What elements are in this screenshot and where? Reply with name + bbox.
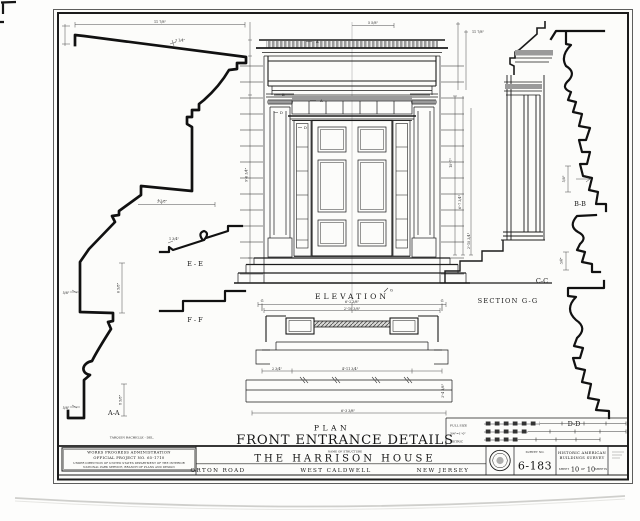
scale-label: 3/4"=1'-0" (450, 432, 466, 436)
section-label-a-a: A-A (107, 409, 120, 417)
wpa-line-1: WORKS PROGRESS ADMINISTRATION (87, 451, 171, 455)
survey-no-label: SURVEY NO. (526, 450, 545, 454)
address-city: WEST CALDWELL (300, 468, 371, 474)
habs-sheet-drawing: 11 7/8" 3 1/4" 3 1/8" 6 5/8" 5/8" 8 5/8"… (0, 0, 640, 521)
section-label-d-d: D-D (568, 420, 581, 428)
cut-ref-b: B (282, 93, 285, 97)
section-label-c-c: C-C (536, 277, 548, 285)
pilaster-capital-right (411, 101, 437, 104)
habs-line-2: BUILDINGS SURVEY (560, 456, 605, 460)
dim-label: 5 5/8" (368, 21, 378, 25)
section-label-f-f: F - F (187, 316, 203, 324)
section-g-g-label: SECTION G-G (478, 297, 539, 305)
habs-of: OF (581, 467, 585, 471)
dim-label: 11 7/8" (472, 30, 485, 34)
scanned-habs-sheet: 11 7/8" 3 1/4" 3 1/8" 6 5/8" 5/8" 8 5/8"… (0, 0, 640, 521)
cut-ref-d: D (280, 111, 283, 115)
scale-bar-full-size (484, 422, 540, 426)
dim-label: 4'-11 3/4" (342, 367, 359, 371)
dim-label: 3 1/4" (175, 39, 185, 43)
dim-label: 9'-6 3/4" (245, 167, 249, 182)
section-label-e-e: E - E (187, 260, 203, 268)
section-label-b-b: B-B (574, 200, 586, 208)
dim-label: 5/8" (63, 291, 70, 295)
dim-label: 10'-7" (449, 158, 453, 168)
dentil-band (266, 41, 438, 48)
survey-number: 6-183 (518, 460, 552, 473)
habs-line-1: HISTORIC AMERICAN (558, 451, 607, 455)
plan-label: PLAN (314, 424, 350, 433)
cut-ref-g: G (441, 299, 444, 303)
cut-ref-d: D (304, 126, 307, 130)
dim-label: 6 5/8" (117, 283, 121, 293)
habs-sheets-suffix: SHEETS (595, 467, 607, 471)
interior-department-seal (490, 450, 510, 470)
wpa-line-4: NATIONAL PARK SERVICE, BRANCH OF PLANS A… (83, 465, 175, 469)
wpa-line-2: OFFICIAL PROJECT NO. 65-1710 (93, 456, 165, 460)
delineator-credit: TARQUIN RACHELLE - DEL. (110, 436, 154, 440)
dim-label: 3/4" (560, 257, 564, 264)
scale-bar-imperial (484, 430, 528, 434)
dim-label: 2 3/4" (272, 367, 282, 371)
dim-label: 6'-2 3/8" (345, 300, 360, 304)
metric-label: METRIC (450, 440, 464, 444)
cut-ref-a: A (315, 40, 319, 44)
structure-name: THE HARRISON HOUSE (254, 454, 435, 465)
dim-label: 5/8" (63, 406, 70, 410)
full-size-label: FULL SIZE (450, 424, 467, 428)
address-road: ORTON ROAD (190, 468, 245, 474)
cut-ref-a: A (319, 99, 323, 103)
soffit-band (515, 50, 553, 56)
scale-bar-metric (484, 438, 518, 442)
pilaster-capital-left (267, 101, 293, 104)
cut-ref-g: G (261, 299, 264, 303)
habs-sheet-prefix: SHEET (559, 467, 570, 471)
dim-label: 6'-3 3/8" (341, 409, 356, 413)
dim-label: 2'-10 3/4" (467, 232, 471, 249)
dim-label: 6'-7 3/4" (458, 194, 462, 209)
address-state: NEW JERSEY (417, 468, 470, 474)
dim-label: 3 1/8" (157, 200, 167, 204)
title-block: WORKS PROGRESS ADMINISTRATION OFFICIAL P… (58, 446, 628, 475)
dim-label: 11 7/8" (154, 20, 167, 24)
door-leaf-plan (314, 321, 390, 327)
dim-label: 3'-4 3/8" (441, 383, 445, 398)
dim-label: 2'-10 3/8" (344, 307, 361, 311)
cut-ref-g: G (390, 289, 393, 293)
habs-sheet-number: 10 (571, 466, 579, 474)
door-head-band (292, 96, 412, 101)
dim-label: 1 3/4" (169, 237, 179, 241)
capital-band-section (505, 84, 542, 89)
dim-label: 8 5/8" (119, 395, 123, 405)
dim-label: 5/8" (562, 175, 566, 182)
